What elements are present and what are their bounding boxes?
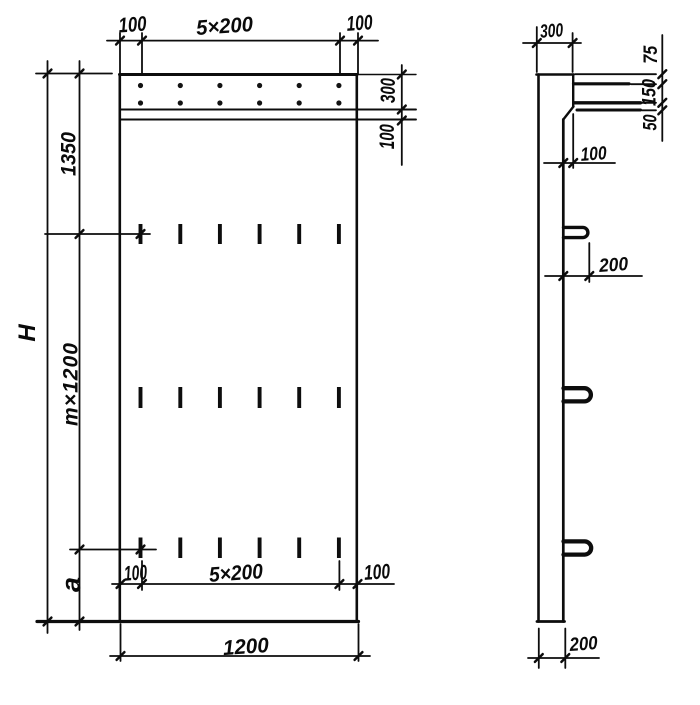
svg-text:H: H <box>14 324 41 342</box>
svg-text:1350: 1350 <box>58 132 81 176</box>
svg-text:5×200: 5×200 <box>195 13 254 40</box>
svg-text:300: 300 <box>539 20 564 43</box>
svg-text:100: 100 <box>118 13 148 38</box>
svg-text:200: 200 <box>598 254 630 277</box>
svg-text:100: 100 <box>376 124 399 149</box>
svg-text:a: a <box>56 577 86 592</box>
svg-text:100: 100 <box>580 143 608 166</box>
svg-text:150: 150 <box>640 79 661 106</box>
svg-text:5×200: 5×200 <box>208 560 264 587</box>
svg-text:100: 100 <box>123 561 148 586</box>
svg-text:300: 300 <box>377 78 400 103</box>
svg-text:100: 100 <box>363 560 391 585</box>
svg-text:75: 75 <box>641 45 662 63</box>
svg-text:1200: 1200 <box>222 634 270 660</box>
svg-text:50: 50 <box>641 114 662 130</box>
svg-text:200: 200 <box>568 633 599 656</box>
svg-text:m×1200: m×1200 <box>60 343 83 426</box>
svg-text:100: 100 <box>346 11 374 36</box>
